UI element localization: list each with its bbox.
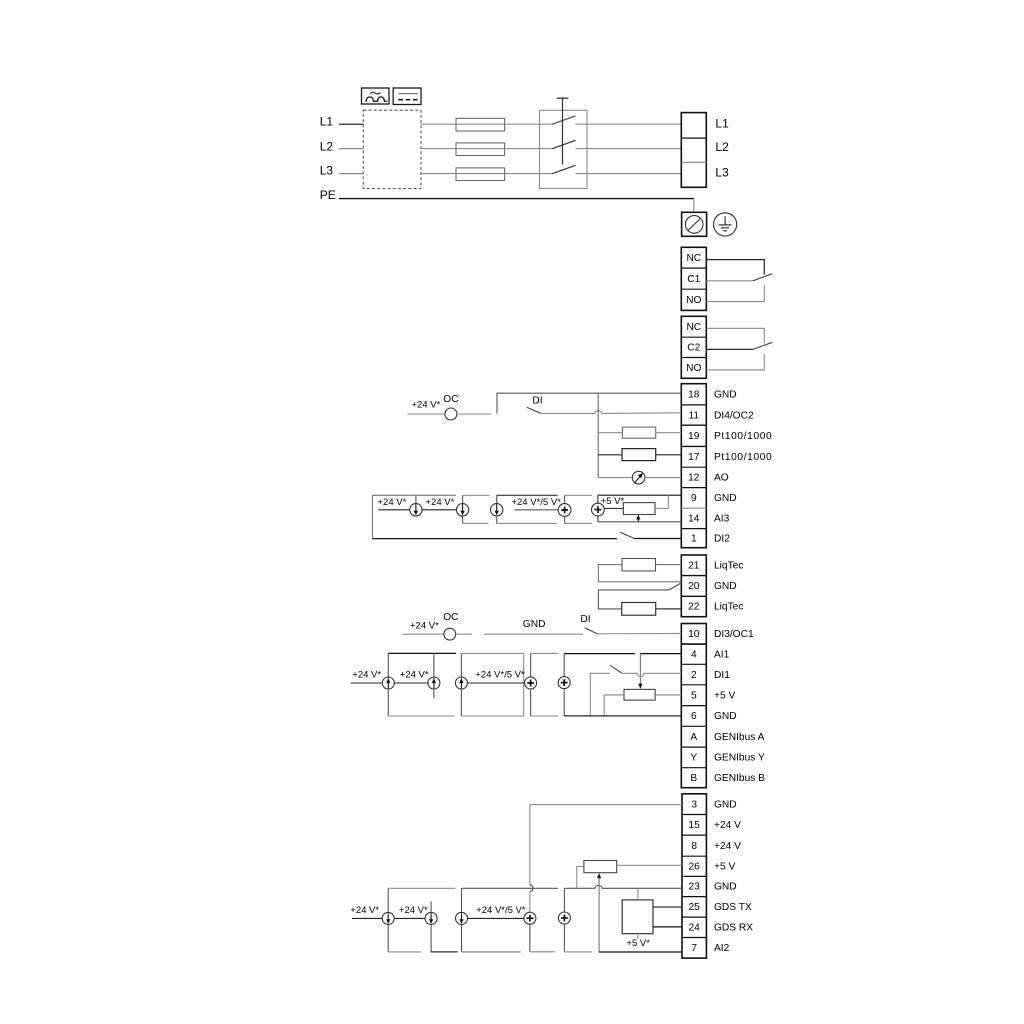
svg-text:LiqTec: LiqTec [714, 602, 743, 613]
svg-text:+24 V*: +24 V* [350, 905, 379, 916]
svg-text:25: 25 [689, 902, 701, 913]
svg-text:AI2: AI2 [714, 943, 730, 954]
svg-text:11: 11 [689, 410, 700, 421]
svg-text:19: 19 [688, 431, 700, 442]
svg-text:L2: L2 [320, 140, 334, 154]
svg-text:AI1: AI1 [714, 649, 730, 660]
svg-text:2: 2 [691, 670, 697, 681]
svg-text:22: 22 [688, 602, 700, 613]
svg-text:C1: C1 [687, 274, 700, 285]
svg-text:L2: L2 [715, 140, 729, 154]
svg-text:+5 V*: +5 V* [601, 496, 625, 507]
svg-text:GENIbus Y: GENIbus Y [714, 753, 765, 764]
svg-text:4: 4 [691, 649, 697, 660]
svg-text:DI: DI [532, 395, 542, 406]
svg-text:15: 15 [689, 820, 701, 831]
svg-text:GENIbus A: GENIbus A [714, 732, 765, 743]
svg-text:OC: OC [443, 394, 458, 405]
svg-text:B: B [690, 773, 697, 784]
svg-text:AI3: AI3 [714, 514, 730, 525]
svg-text:GND: GND [714, 493, 737, 504]
svg-text:GND: GND [714, 882, 737, 893]
svg-text:3: 3 [691, 799, 697, 810]
svg-text:DI2: DI2 [714, 533, 730, 544]
svg-text:NO: NO [686, 295, 701, 306]
svg-text:5: 5 [691, 690, 697, 701]
svg-text:+5 V: +5 V [714, 690, 735, 701]
svg-text:+24 V*: +24 V* [352, 669, 381, 680]
svg-text:AO: AO [714, 473, 729, 484]
svg-text:NO: NO [686, 363, 701, 374]
svg-text:GENIbus B: GENIbus B [714, 773, 765, 784]
svg-text:23: 23 [689, 882, 701, 893]
svg-text:PE: PE [320, 188, 336, 202]
svg-text:DI1: DI1 [714, 670, 730, 681]
svg-text:8: 8 [691, 841, 697, 852]
svg-text:20: 20 [688, 581, 700, 592]
svg-text:NC: NC [686, 253, 701, 264]
svg-text:NC: NC [686, 322, 701, 333]
svg-text:L1: L1 [320, 114, 334, 128]
svg-text:+24 V*: +24 V* [412, 400, 441, 411]
svg-text:A: A [690, 732, 697, 743]
svg-text:Y: Y [690, 753, 697, 764]
svg-text:+24 V*: +24 V* [400, 669, 429, 680]
svg-text:GND: GND [714, 711, 737, 722]
svg-text:7: 7 [691, 943, 697, 954]
svg-text:+24 V: +24 V [714, 841, 741, 852]
svg-text:GND: GND [714, 390, 737, 401]
svg-text:6: 6 [691, 711, 697, 722]
svg-text:L1: L1 [715, 116, 729, 130]
svg-text:L3: L3 [320, 163, 334, 177]
svg-text:+24 V*/5 V*: +24 V*/5 V* [475, 669, 525, 680]
svg-text:+24 V*: +24 V* [378, 497, 407, 508]
svg-text:GDS RX: GDS RX [714, 923, 753, 934]
svg-text:17: 17 [688, 452, 700, 463]
svg-text:Pt100/1000: Pt100/1000 [714, 431, 772, 442]
svg-text:Pt100/1000: Pt100/1000 [714, 452, 772, 463]
svg-text:OC: OC [443, 612, 458, 623]
svg-text:12: 12 [688, 473, 700, 484]
svg-text:21: 21 [688, 561, 700, 572]
svg-text:18: 18 [688, 390, 700, 401]
svg-text:10: 10 [688, 629, 700, 640]
svg-text:24: 24 [689, 923, 701, 934]
svg-text:+24 V*/5 V*: +24 V*/5 V* [476, 905, 526, 916]
svg-text:+24 V*/5 V*: +24 V*/5 V* [512, 497, 562, 508]
svg-text:DI3/OC1: DI3/OC1 [714, 629, 754, 640]
svg-text:GND: GND [714, 581, 737, 592]
svg-text:+24 V*: +24 V* [426, 497, 455, 508]
svg-text:GND: GND [523, 619, 546, 630]
svg-text:DI: DI [580, 614, 590, 625]
svg-text:C2: C2 [687, 343, 700, 354]
svg-text:9: 9 [691, 493, 697, 504]
svg-text:L3: L3 [715, 166, 729, 180]
svg-text:+5 V: +5 V [714, 862, 735, 873]
svg-text:GDS TX: GDS TX [714, 902, 752, 913]
svg-text:GND: GND [714, 799, 737, 810]
svg-text:+24 V: +24 V [714, 820, 741, 831]
svg-text:LiqTec: LiqTec [714, 561, 743, 572]
svg-text:+5 V*: +5 V* [626, 938, 650, 949]
svg-text:14: 14 [688, 514, 700, 525]
svg-text:+24 V*: +24 V* [399, 905, 428, 916]
svg-text:26: 26 [689, 862, 701, 873]
svg-text:1: 1 [691, 533, 697, 544]
svg-text:+24 V*: +24 V* [410, 620, 439, 631]
svg-text:DI4/OC2: DI4/OC2 [714, 410, 754, 421]
